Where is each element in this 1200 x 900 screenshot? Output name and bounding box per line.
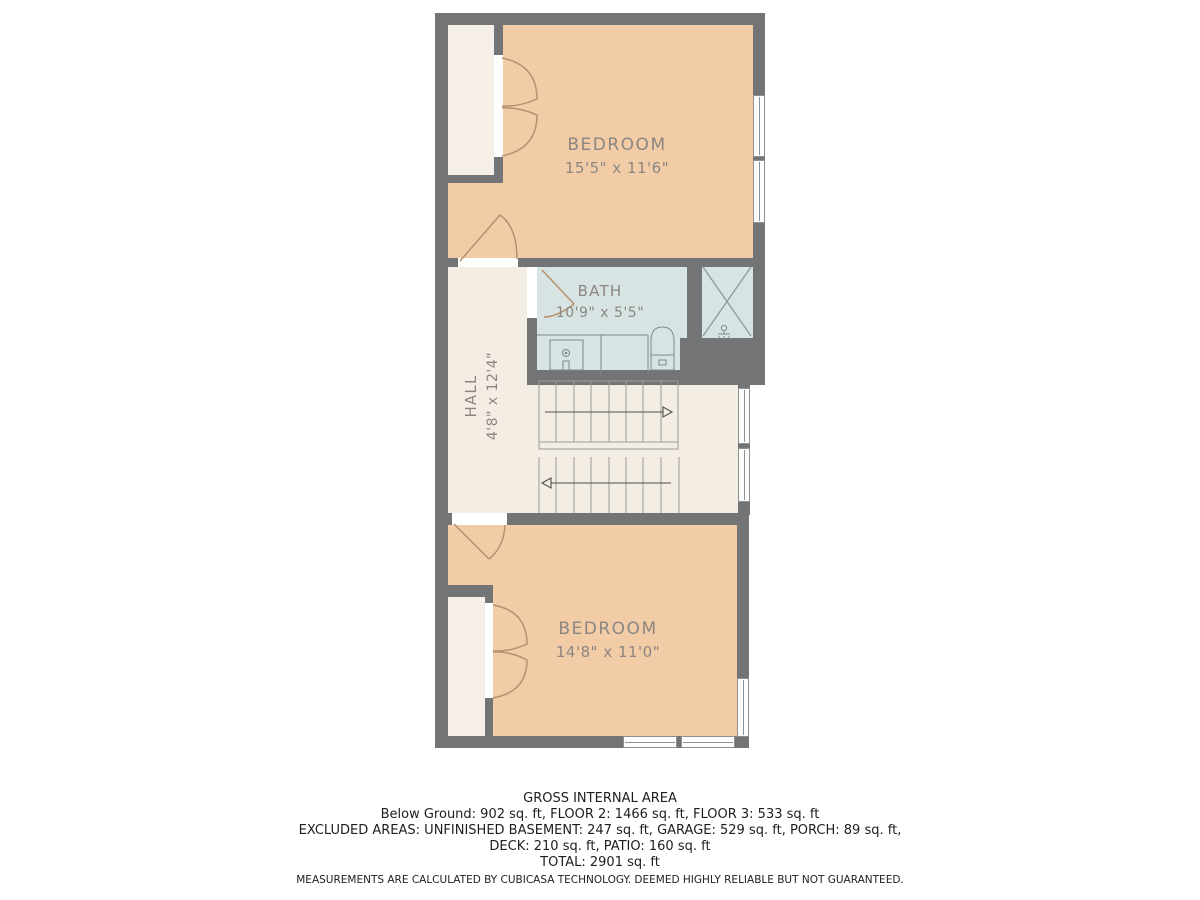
- window-stairs-lower: [738, 448, 750, 502]
- bedroom-1-closet-area: [448, 25, 495, 175]
- window-pane: [744, 450, 745, 500]
- floor-areas-line: Below Ground: 902 sq. ft, FLOOR 2: 1466 …: [0, 807, 1200, 823]
- window-bedroom2-bottom-right: [681, 736, 735, 748]
- window-pane: [759, 162, 760, 221]
- total-area-line: TOTAL: 2901 sq. ft: [0, 855, 1200, 871]
- room-name: BATH: [525, 281, 675, 303]
- bedroom-2-closet-area: [447, 597, 485, 736]
- wall-left: [435, 13, 448, 748]
- gross-internal-area-title: GROSS INTERNAL AREA: [0, 791, 1200, 807]
- floorplan-canvas: BEDROOM 15'5" x 11'6" BATH 10'9" x 5'5" …: [435, 13, 765, 748]
- room-dimensions: 14'8" x 11'0": [508, 642, 708, 664]
- wall-bath-bottom: [527, 370, 765, 385]
- window-bedroom2-right: [737, 678, 749, 737]
- room-dimensions: 4'8" x 12'4": [483, 341, 503, 451]
- excluded-areas-line-1: EXCLUDED AREAS: UNFINISHED BASEMENT: 247…: [0, 823, 1200, 839]
- shower-area: [702, 265, 753, 338]
- disclaimer-text: MEASUREMENTS ARE CALCULATED BY CUBICASA …: [0, 872, 1200, 888]
- room-dimensions: 15'5" x 11'6": [517, 158, 717, 180]
- wall-closet2-stub-lower: [485, 698, 493, 736]
- room-name: HALL: [461, 341, 483, 451]
- floorplan-page: BEDROOM 15'5" x 11'6" BATH 10'9" x 5'5" …: [0, 0, 1200, 900]
- hall-label: HALL 4'8" x 12'4": [461, 341, 503, 451]
- wall-top: [435, 13, 765, 25]
- window-bedroom2-bottom-left: [623, 736, 677, 748]
- wall-closet1-bottom: [435, 175, 503, 183]
- doorway-bedroom1: [458, 258, 518, 267]
- window-bedroom1-right-upper: [753, 95, 765, 157]
- window-pane: [625, 742, 675, 743]
- window-pane: [683, 742, 733, 743]
- doorway-bedroom2: [452, 513, 507, 525]
- room-name: BEDROOM: [508, 617, 708, 642]
- bath-label: BATH 10'9" x 5'5": [525, 281, 675, 323]
- window-stairs-upper: [738, 388, 750, 444]
- window-pane: [743, 680, 744, 735]
- room-name: BEDROOM: [517, 133, 717, 158]
- room-dimensions: 10'9" x 5'5": [525, 303, 675, 323]
- bedroom-1-label: BEDROOM 15'5" x 11'6": [517, 133, 717, 179]
- bedroom-2-label: BEDROOM 14'8" x 11'0": [508, 617, 708, 663]
- window-pane: [759, 97, 760, 155]
- wall-bath-shower: [687, 265, 702, 338]
- stairwell-area: [535, 385, 738, 513]
- wall-closet2-top: [443, 585, 493, 597]
- excluded-areas-line-2: DECK: 210 sq. ft, PATIO: 160 sq. ft: [0, 839, 1200, 855]
- doorway-closet2: [485, 603, 493, 698]
- doorway-closet1: [494, 55, 503, 157]
- window-pane: [744, 390, 745, 442]
- window-bedroom1-right-lower: [753, 160, 765, 223]
- area-summary: GROSS INTERNAL AREA Below Ground: 902 sq…: [0, 791, 1200, 888]
- wall-shower-surround: [680, 338, 753, 370]
